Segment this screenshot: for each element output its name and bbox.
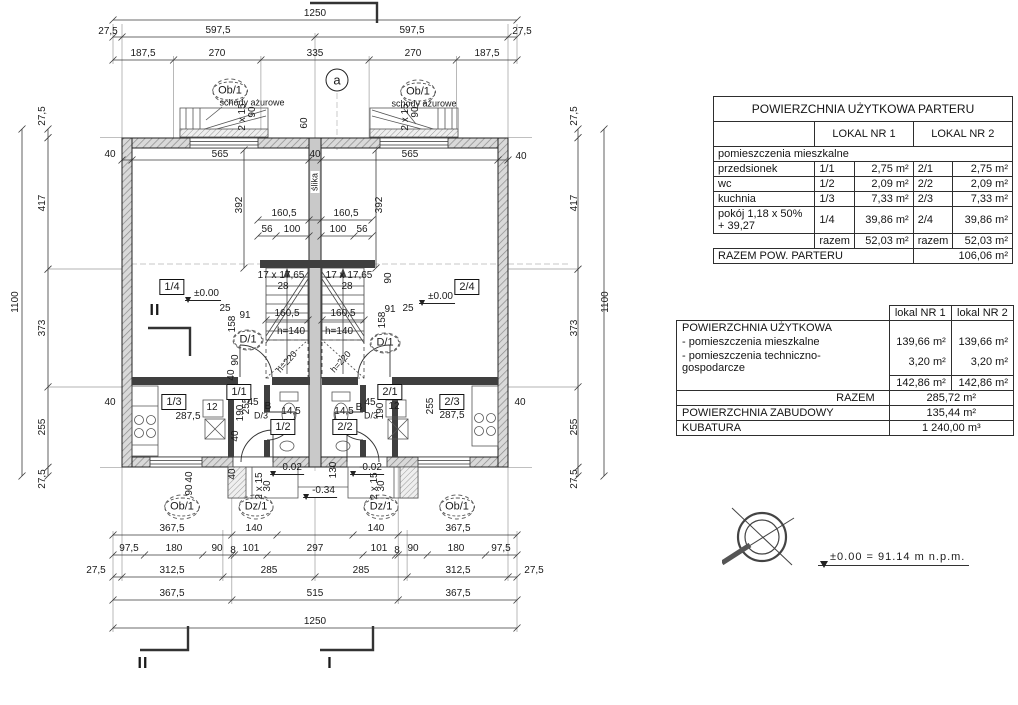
summary-row-name: - pomieszczenia mieszkalne	[677, 335, 890, 349]
room-area: 39,86 m²	[953, 207, 1013, 234]
table-razem-row: RAZEM 285,72 m²	[677, 390, 1014, 405]
room-no: 2/4	[913, 207, 953, 234]
room-name: pokój 1,18 x 50% + 39,27	[714, 207, 815, 234]
summary-title: POWIERZCHNIA UŻYTKOWA	[677, 321, 890, 336]
subtotal-value: 142,86 m²	[889, 375, 951, 390]
room-name: przedsionek	[714, 162, 815, 177]
table-row: kuchnia 1/3 7,33 m² 2/3 7,33 m²	[714, 192, 1013, 207]
table-row: przedsionek 1/1 2,75 m² 2/1 2,75 m²	[714, 162, 1013, 177]
razem-value: 52,03 m²	[854, 234, 913, 249]
room-no: 2/2	[913, 177, 953, 192]
room-name: wc	[714, 177, 815, 192]
table-subtotal-row: 142,86 m² 142,86 m²	[677, 375, 1014, 390]
room-no: 1/4	[815, 207, 855, 234]
table-powierzchnia-uzytkowa: lokal NR 1 lokal NR 2 POWIERZCHNIA UŻYTK…	[676, 305, 1014, 436]
summary-row-value: 139,66 m²	[889, 335, 951, 349]
table-total-row: RAZEM POW. PARTERU 106,06 m²	[714, 249, 1013, 264]
benchmark-level-note: ±0.00 = 91.14 m n.p.m.	[818, 551, 969, 566]
table-kubatura-row: KUBATURA 1 240,00 m³	[677, 420, 1014, 435]
table-row: wc 1/2 2,09 m² 2/2 2,09 m²	[714, 177, 1013, 192]
table-row: - pomieszczenia techniczno-gospodarcze 3…	[677, 349, 1014, 375]
summary-row-value: 3,20 m²	[889, 349, 951, 375]
razem-label: razem	[815, 234, 855, 249]
table-row: - pomieszczenia mieszkalne 139,66 m² 139…	[677, 335, 1014, 349]
summary-row-name: - pomieszczenia techniczno-gospodarcze	[677, 349, 890, 375]
table-parter-col-lokal2: LOKAL NR 2	[913, 122, 1012, 147]
razem-value: 285,72 m²	[889, 390, 1013, 405]
entry-porches	[228, 467, 418, 498]
party-wall	[309, 138, 321, 467]
room-name: kuchnia	[714, 192, 815, 207]
table-parter-corner	[714, 122, 815, 147]
room-area: 2,75 m²	[854, 162, 913, 177]
room-area: 2,09 m²	[854, 177, 913, 192]
table-parter-title: POWIERZCHNIA UŻYTKOWA PARTERU	[714, 97, 1013, 122]
table-razem-row: razem 52,03 m² razem 52,03 m²	[714, 234, 1013, 249]
room-no: 2/1	[913, 162, 953, 177]
room-no: 1/1	[815, 162, 855, 177]
table-zabudowa-row: POWIERZCHNIA ZABUDOWY 135,44 m²	[677, 405, 1014, 420]
room-area: 7,33 m²	[953, 192, 1013, 207]
razem-value: 52,03 m²	[953, 234, 1013, 249]
total-label: RAZEM POW. PARTERU	[714, 249, 914, 264]
subtotal-value: 142,86 m²	[951, 375, 1013, 390]
section-cut-lines	[140, 3, 377, 650]
razem-label: RAZEM	[677, 390, 890, 405]
total-value: 106,06 m²	[913, 249, 1012, 264]
zabudowa-label: POWIERZCHNIA ZABUDOWY	[677, 405, 890, 420]
room-area: 2,75 m²	[953, 162, 1013, 177]
table-summary-corner	[677, 306, 890, 321]
floor-plan-drawing	[0, 0, 660, 705]
room-area: 7,33 m²	[854, 192, 913, 207]
room-no: 1/3	[815, 192, 855, 207]
table-parter-col-lokal1: LOKAL NR 1	[815, 122, 913, 147]
exterior-stairs-top	[180, 107, 458, 137]
table-summary-col-lokal1: lokal NR 1	[889, 306, 951, 321]
kubatura-label: KUBATURA	[677, 420, 890, 435]
zabudowa-value: 135,44 m²	[889, 405, 1013, 420]
table-summary-col-lokal2: lokal NR 2	[951, 306, 1013, 321]
room-area: 2,09 m²	[953, 177, 1013, 192]
table-powierzchnia-parteru: POWIERZCHNIA UŻYTKOWA PARTERU LOKAL NR 1…	[713, 96, 1013, 264]
compass-symbol	[722, 497, 806, 581]
room-area: 39,86 m²	[854, 207, 913, 234]
kubatura-value: 1 240,00 m³	[889, 420, 1013, 435]
table-parter-section: pomieszczenia mieszkalne	[714, 147, 1013, 162]
table-row: pokój 1,18 x 50% + 39,27 1/4 39,86 m² 2/…	[714, 207, 1013, 234]
room-no: 1/2	[815, 177, 855, 192]
summary-row-value: 3,20 m²	[951, 349, 1013, 375]
summary-row-value: 139,66 m²	[951, 335, 1013, 349]
room-no: 2/3	[913, 192, 953, 207]
drawing-sheet: { "tables": { "parter": { "title": "POWI…	[0, 0, 1018, 705]
razem-label: razem	[913, 234, 953, 249]
